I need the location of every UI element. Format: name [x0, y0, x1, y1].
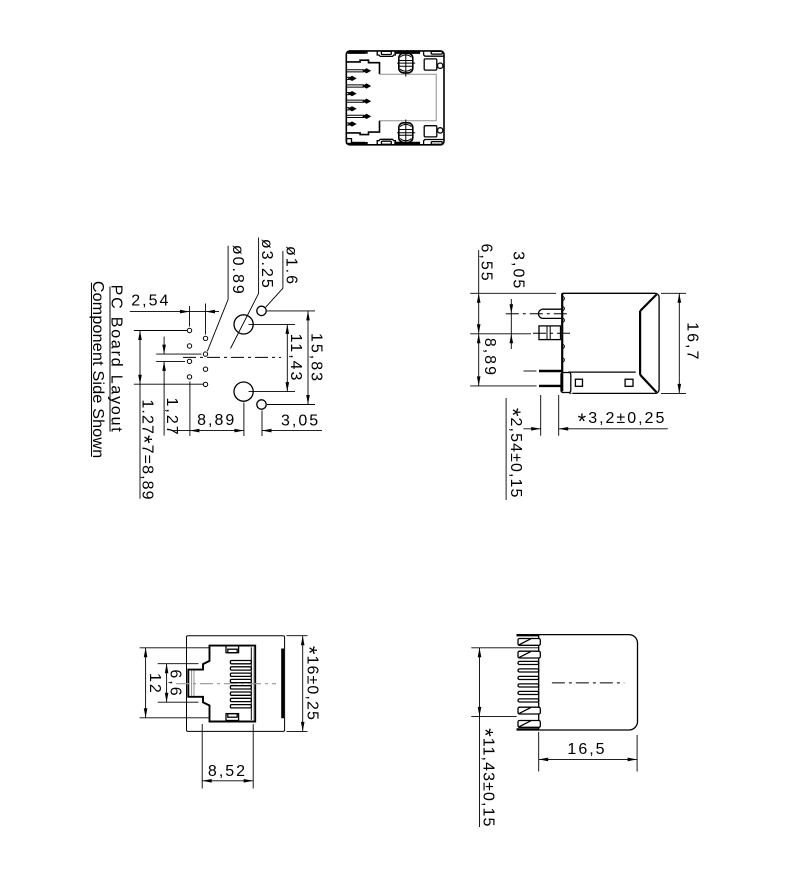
svg-text:6,55: 6,55 [478, 244, 495, 283]
svg-text:3,05: 3,05 [510, 251, 527, 290]
svg-text:ø3.25: ø3.25 [258, 239, 275, 290]
svg-text:8,89: 8,89 [481, 338, 498, 377]
svg-text:ø0.89: ø0.89 [229, 245, 246, 296]
svg-text:2,54: 2,54 [131, 292, 170, 309]
svg-text:6,6: 6,6 [167, 669, 184, 697]
svg-text:ø1.6: ø1.6 [282, 246, 299, 286]
svg-text:12: 12 [146, 673, 163, 695]
svg-text:16,7: 16,7 [683, 322, 700, 361]
svg-text:11,43: 11,43 [287, 334, 304, 383]
svg-text:8,52: 8,52 [208, 763, 247, 780]
svg-text:8,89: 8,89 [197, 412, 236, 429]
svg-text:3,05: 3,05 [281, 412, 320, 429]
svg-text:15,83: 15,83 [308, 333, 325, 383]
svg-text:16,5: 16,5 [567, 741, 606, 758]
